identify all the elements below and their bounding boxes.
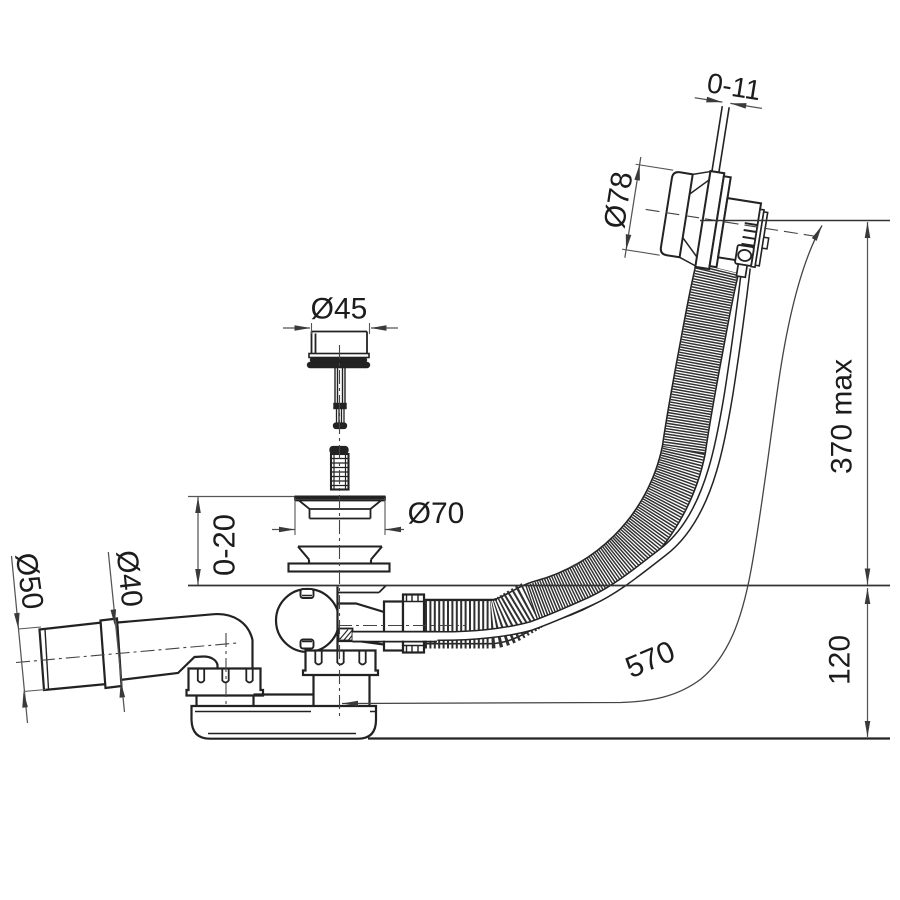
svg-text:120: 120 bbox=[824, 635, 857, 685]
svg-text:Ø40: Ø40 bbox=[110, 549, 149, 609]
svg-text:Ø45: Ø45 bbox=[311, 293, 368, 326]
svg-text:370 max: 370 max bbox=[826, 359, 859, 474]
svg-text:0-20: 0-20 bbox=[207, 514, 242, 576]
svg-text:Ø70: Ø70 bbox=[408, 497, 465, 530]
